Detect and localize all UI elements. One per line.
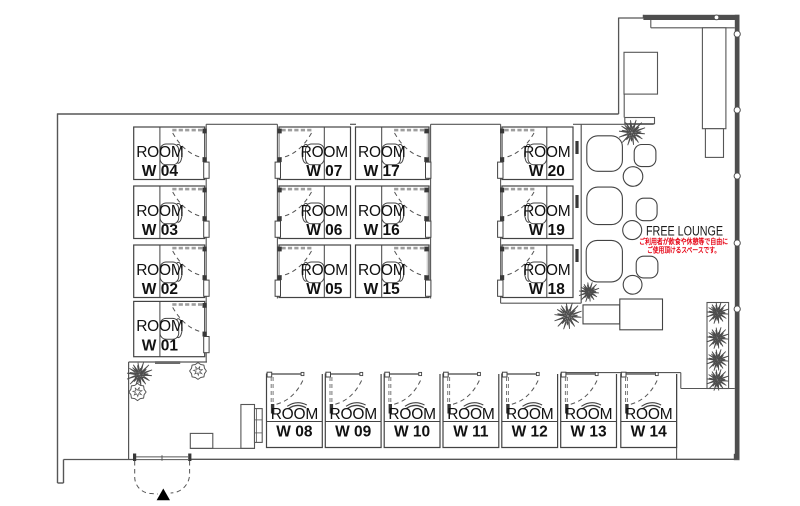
- svg-text:ROOM: ROOM: [271, 406, 318, 423]
- svg-text:ROOM: ROOM: [447, 406, 494, 423]
- svg-text:W 05: W 05: [306, 281, 343, 298]
- svg-text:ROOM: ROOM: [329, 406, 376, 423]
- svg-text:ROOM: ROOM: [301, 203, 348, 220]
- svg-text:W 14: W 14: [631, 424, 668, 441]
- svg-text:ROOM: ROOM: [625, 406, 672, 423]
- svg-text:ROOM: ROOM: [136, 144, 183, 161]
- svg-text:W 16: W 16: [364, 222, 401, 239]
- svg-text:ROOM: ROOM: [136, 203, 183, 220]
- svg-text:ROOM: ROOM: [506, 406, 553, 423]
- svg-text:W 12: W 12: [512, 424, 548, 441]
- svg-text:ROOM: ROOM: [301, 144, 348, 161]
- svg-text:ROOM: ROOM: [358, 262, 405, 279]
- svg-text:W 06: W 06: [306, 222, 343, 239]
- svg-text:ROOM: ROOM: [523, 144, 570, 161]
- svg-text:ROOM: ROOM: [136, 318, 183, 335]
- svg-text:ROOM: ROOM: [523, 262, 570, 279]
- svg-text:ROOM: ROOM: [136, 262, 183, 279]
- svg-text:W 03: W 03: [142, 222, 179, 239]
- svg-text:ご使用頂けるスペースです。: ご使用頂けるスペースです。: [647, 245, 720, 254]
- svg-text:W 20: W 20: [529, 163, 565, 180]
- svg-text:W 08: W 08: [276, 424, 313, 441]
- svg-text:W 10: W 10: [394, 424, 430, 441]
- svg-text:W 15: W 15: [364, 281, 401, 298]
- svg-text:ROOM: ROOM: [358, 144, 405, 161]
- svg-text:ROOM: ROOM: [358, 203, 405, 220]
- svg-text:W 11: W 11: [453, 424, 489, 441]
- svg-text:W 09: W 09: [335, 424, 372, 441]
- svg-text:W 01: W 01: [142, 338, 179, 355]
- svg-text:ROOM: ROOM: [565, 406, 612, 423]
- svg-text:W 13: W 13: [571, 424, 608, 441]
- svg-text:W 04: W 04: [142, 163, 179, 180]
- svg-text:ROOM: ROOM: [523, 203, 570, 220]
- svg-text:ROOM: ROOM: [301, 262, 348, 279]
- svg-text:ROOM: ROOM: [388, 406, 435, 423]
- svg-text:W 02: W 02: [142, 281, 178, 298]
- svg-text:W 17: W 17: [364, 163, 400, 180]
- svg-text:W 18: W 18: [529, 281, 566, 298]
- svg-text:W 19: W 19: [529, 222, 566, 239]
- svg-text:W 07: W 07: [306, 163, 342, 180]
